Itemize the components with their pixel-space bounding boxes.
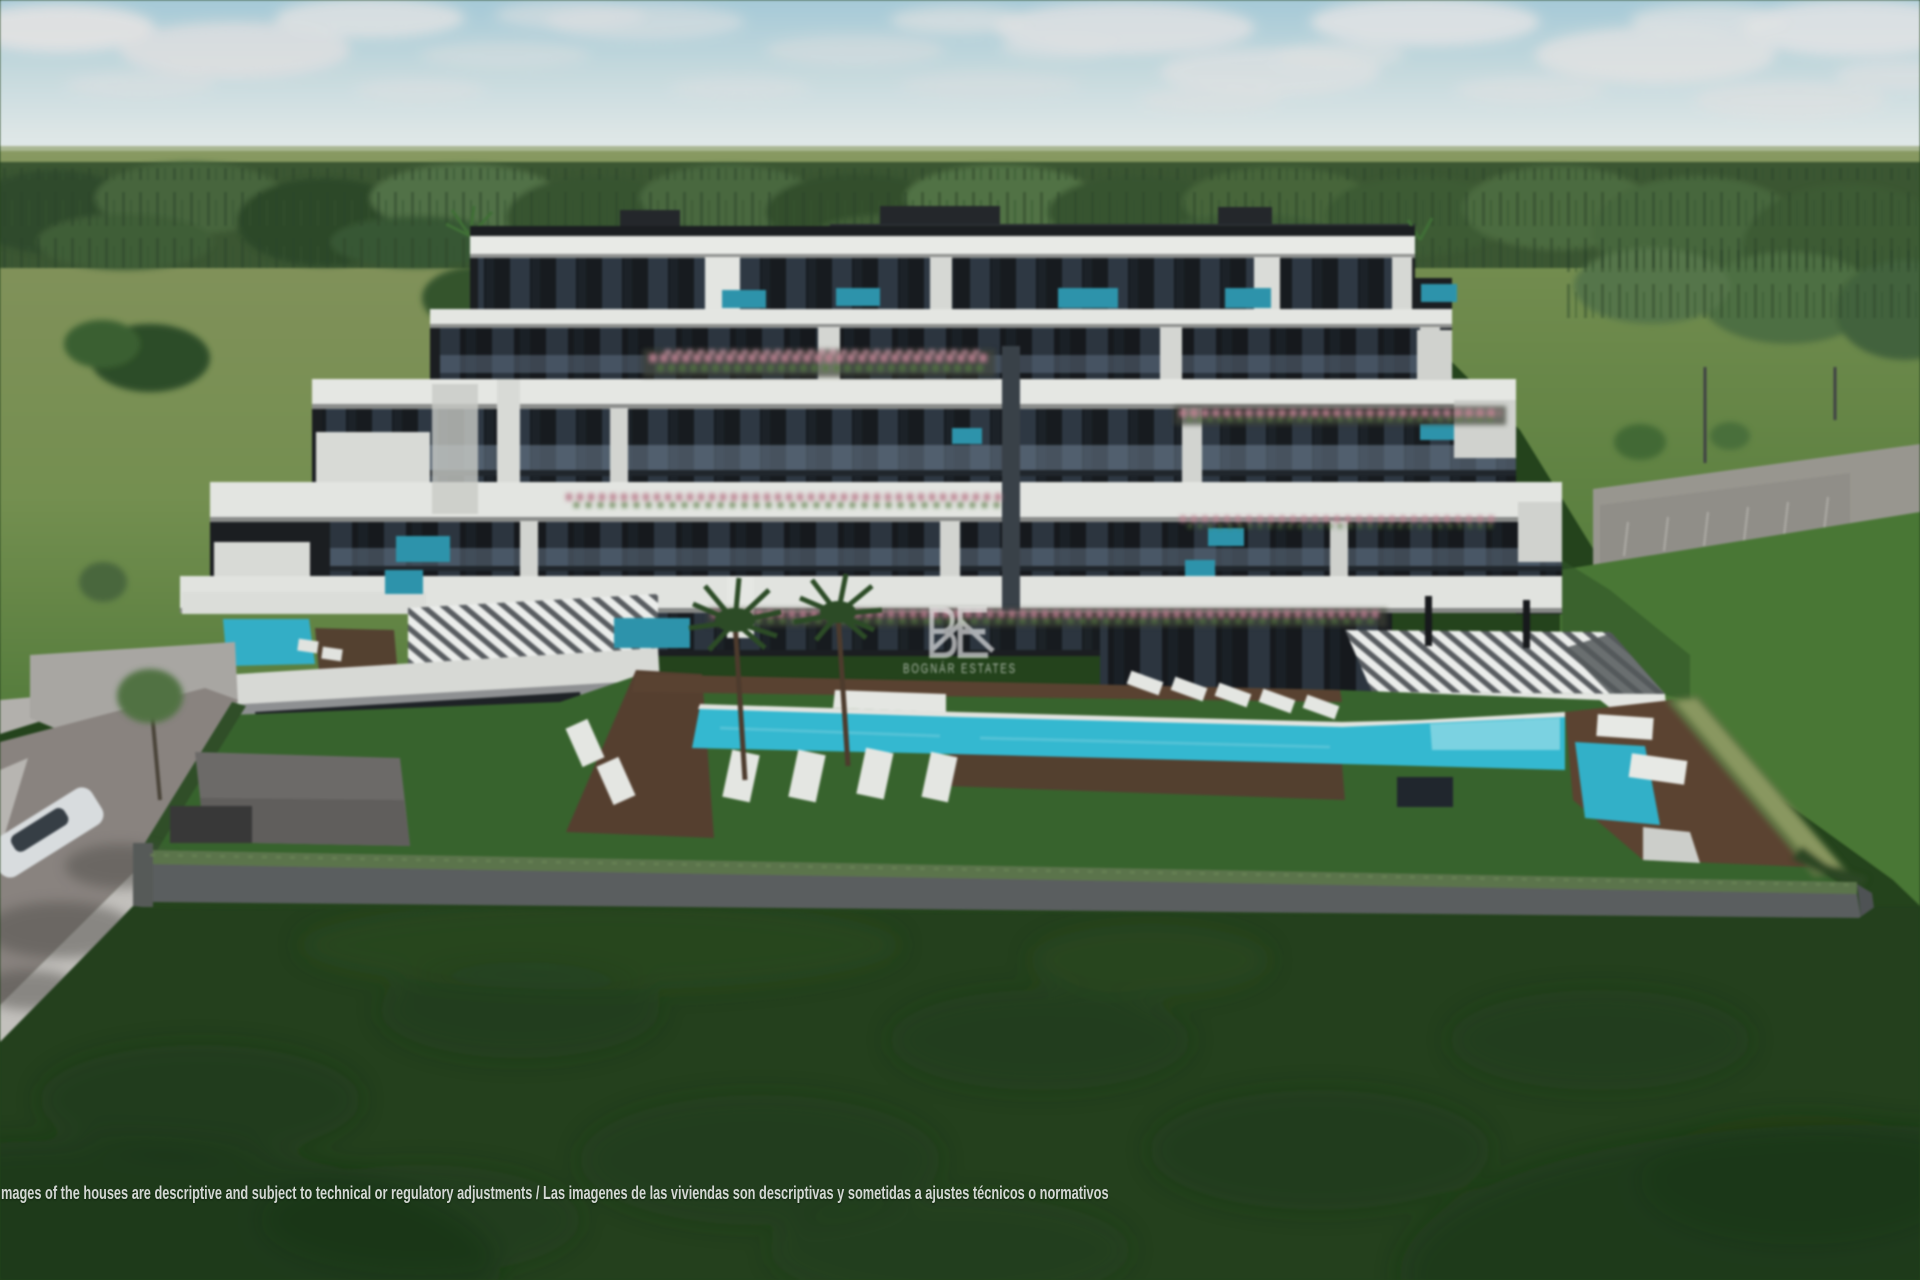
svg-text:BOGNÁR ESTATES: BOGNÁR ESTATES (903, 661, 1017, 676)
